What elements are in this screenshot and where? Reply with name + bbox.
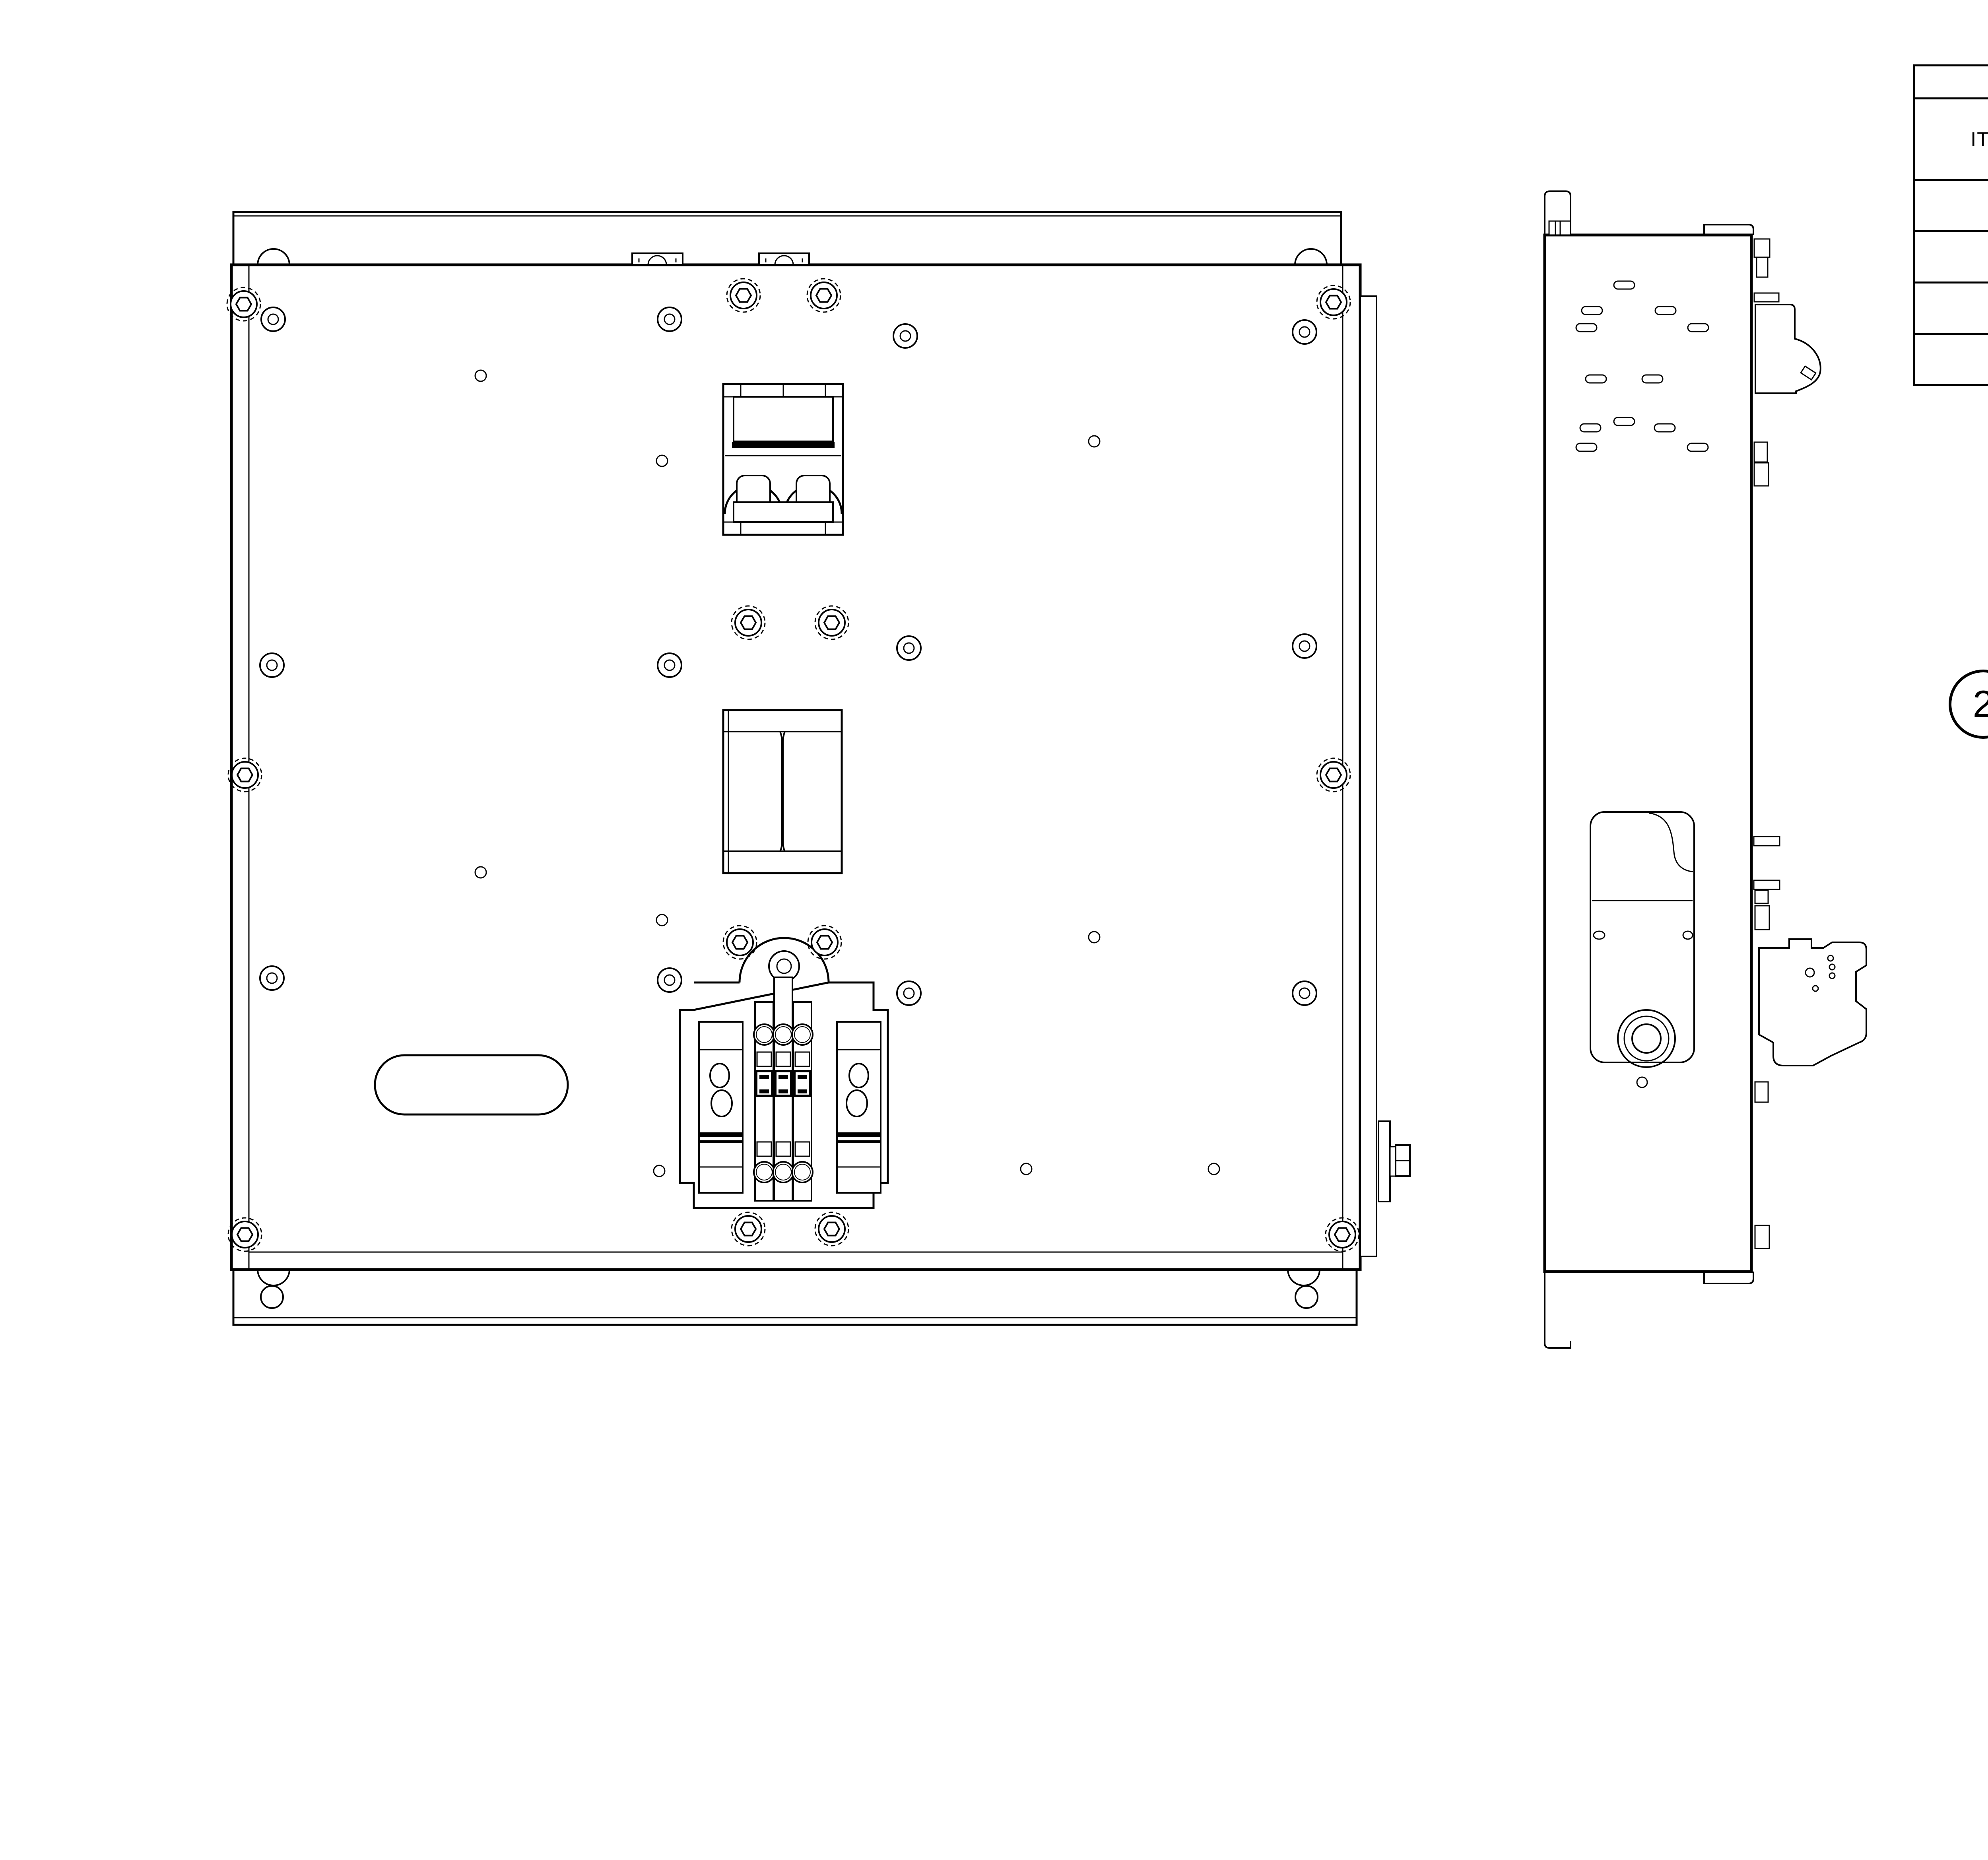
parts-list-table: PARTS LIST ITEM QTY PART NUMBER DESCRIPT… xyxy=(1913,64,1988,386)
relay-front xyxy=(723,710,842,873)
cell-item: 4 xyxy=(1914,334,1988,385)
bottom-flange xyxy=(233,1270,1357,1325)
din-clip-side xyxy=(1759,939,1866,1066)
circuit-breaker-front xyxy=(723,384,843,535)
earth-stud xyxy=(1378,1121,1410,1202)
cell-item: 3 xyxy=(1914,283,1988,334)
cell-item: 1 xyxy=(1914,180,1988,231)
drawing-canvas xyxy=(0,0,1988,1860)
col-header-item: ITEM xyxy=(1914,99,1988,180)
flange-hole-icon xyxy=(261,1286,283,1308)
edge-notch xyxy=(258,249,289,265)
handle-slot xyxy=(375,1055,568,1114)
side-protrusions xyxy=(1754,239,1866,1248)
din-tab xyxy=(632,253,683,265)
parts-list-row: 2 1 901-023 Top Plate for NLC xyxy=(1914,231,1988,283)
front-view xyxy=(227,212,1410,1325)
edge-notch xyxy=(1288,1270,1320,1285)
side-view xyxy=(1545,191,1866,1348)
bottom-hook xyxy=(1545,1260,1571,1348)
flange-hole-icon xyxy=(1295,1286,1318,1308)
fuse-elements xyxy=(756,1071,810,1096)
right-side-wall xyxy=(1360,296,1376,1256)
din-tab xyxy=(759,253,809,265)
cell-item: 2 xyxy=(1914,231,1988,283)
parts-list-row: 4 1 600-928 Automatsikring 6A xyxy=(1914,334,1988,385)
edge-notch xyxy=(1295,249,1327,265)
parts-list-row: 3 1 901-020 Bottom plate assembly NLC xyxy=(1914,283,1988,334)
edge-notch xyxy=(258,1270,289,1285)
side-plate xyxy=(1545,235,1751,1272)
balloon-label: 2 xyxy=(1973,683,1988,726)
parts-list-row: 1 1 600-917 QUINT-PS/ 1VAC/24VDC/10 xyxy=(1914,180,1988,231)
parts-list-title: PARTS LIST xyxy=(1914,66,1988,99)
psu-side xyxy=(1590,812,1694,1087)
